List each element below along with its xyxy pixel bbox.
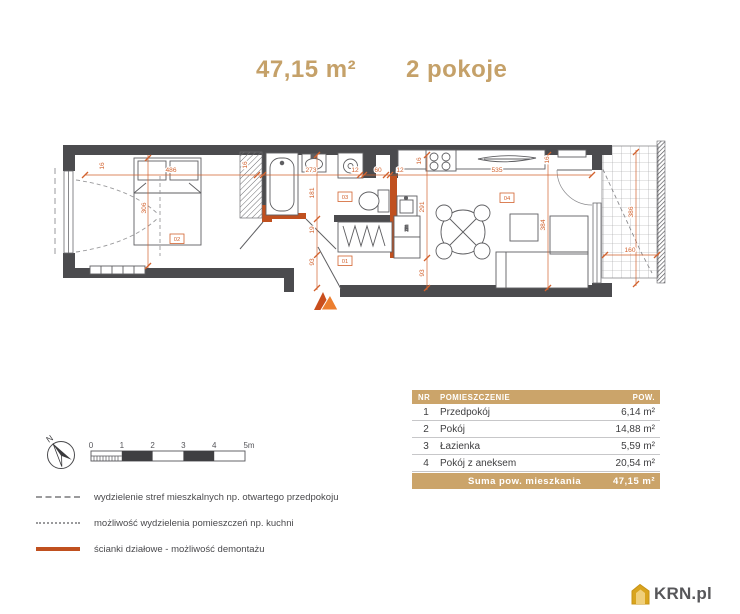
dimension-label: 384 — [540, 219, 547, 230]
room-table-row: 4Pokój z aneksem20,54 m² — [412, 455, 660, 472]
legend: wydzielenie stref mieszkalnych np. otwar… — [36, 484, 396, 562]
legend-item: możliwość wydzielenia pomieszczeń np. ku… — [36, 510, 396, 536]
dimension-label: 12 — [396, 167, 404, 174]
room-table-rows: 1Przedpokój6,14 m²2Pokój14,88 m²3Łazienk… — [412, 404, 660, 472]
dimension-label: 273 — [305, 167, 316, 174]
legend-line-sample-dashed — [36, 496, 80, 498]
row-area: 6,14 m² — [593, 407, 660, 418]
north-label: N — [44, 433, 55, 445]
scale-tick-label: 2 — [150, 441, 155, 450]
dimension-label: 93 — [309, 258, 316, 266]
header-nr: NR — [412, 393, 440, 402]
header-name: POMIESZCZENIE — [440, 393, 593, 402]
legend-item-label: wydzielenie stref mieszkalnych np. otwar… — [94, 492, 339, 503]
dimension-label: 60 — [374, 167, 382, 174]
room-table-row: 2Pokój14,88 m² — [412, 421, 660, 438]
dimension-label: 306 — [141, 202, 148, 213]
scale-bar: 012345m — [89, 441, 255, 461]
row-number: 1 — [412, 407, 440, 418]
furniture: zm — [76, 150, 588, 288]
room-label-text: 03 — [342, 195, 348, 201]
entrance-marker — [314, 292, 338, 310]
row-number: 3 — [412, 441, 440, 452]
scale-tick-label: 0 — [89, 441, 94, 450]
scale-tick-label: 1 — [120, 441, 125, 450]
row-area: 20,54 m² — [593, 458, 660, 469]
dimension-label: 160 — [624, 247, 635, 254]
row-number: 2 — [412, 424, 440, 435]
room-table-row: 1Przedpokój6,14 m² — [412, 404, 660, 421]
room-table-sum-row: Suma pow. mieszkania 47,15 m² — [412, 473, 660, 489]
dimension-label: 16 — [99, 162, 106, 170]
room-table-row: 3Łazienka5,59 m² — [412, 438, 660, 455]
row-area: 5,59 m² — [593, 441, 660, 452]
row-room-name: Pokój — [440, 424, 593, 435]
washing-machine — [338, 153, 363, 178]
scale-tick-label: 5m — [243, 441, 254, 450]
door-bedroom — [240, 222, 263, 249]
dimension-label: 181 — [309, 187, 316, 198]
legend-line-sample-dotted — [36, 522, 80, 524]
sum-label: Suma pow. mieszkania — [440, 476, 593, 487]
legend-line-sample-solid — [36, 547, 80, 551]
row-number: 4 — [412, 458, 440, 469]
dining-table — [436, 205, 490, 259]
dimension-label: 535 — [491, 167, 502, 174]
dimension-label: 19 — [309, 226, 316, 234]
krn-house-icon — [630, 582, 651, 606]
dimension-label: 386 — [628, 206, 635, 217]
room-table: NR POMIESZCZENIE POW. 1Przedpokój6,14 m²… — [412, 390, 660, 489]
row-area: 14,88 m² — [593, 424, 660, 435]
chair — [436, 243, 452, 259]
scale-tick-label: 4 — [212, 441, 217, 450]
door-entrance — [318, 247, 341, 289]
chair — [474, 243, 490, 259]
sum-value: 47,15 m² — [593, 476, 660, 487]
legend-item-label: możliwość wydzielenia pomieszczeń np. ku… — [94, 518, 294, 529]
header-pow: POW. — [593, 393, 660, 402]
row-room-name: Przedpokój — [440, 407, 593, 418]
kitchen-sink — [397, 196, 417, 216]
row-room-name: Łazienka — [440, 441, 593, 452]
legend-item-label: ścianki działowe - możliwość demontażu — [94, 544, 265, 555]
dimension-label: 486 — [165, 167, 176, 174]
dimension-label: 93 — [419, 269, 426, 277]
dimension-label: 291 — [419, 201, 426, 212]
radiator — [90, 266, 145, 274]
room-label-text: 01 — [342, 259, 348, 265]
chair — [474, 205, 490, 221]
balcony-railing — [657, 141, 665, 283]
coffee-table — [510, 214, 538, 241]
krn-logo-text: KRN.pl — [654, 584, 712, 604]
dimension-label: 16 — [416, 157, 423, 165]
krn-logo: KRN.pl — [630, 582, 712, 606]
toilet — [359, 190, 389, 212]
chair — [436, 205, 452, 221]
room-label-text: 02 — [174, 237, 180, 243]
row-room-name: Pokój z aneksem — [440, 458, 593, 469]
hall-wardrobe — [338, 222, 392, 252]
appliance-label: zm — [404, 225, 410, 232]
legend-item: ścianki działowe - możliwość demontażu — [36, 536, 396, 562]
room-table-header: NR POMIESZCZENIE POW. — [412, 390, 660, 404]
floorplan-page: { "title": { "area": "47,15 m²", "rooms_… — [0, 0, 740, 614]
dimension-label: 16 — [242, 161, 249, 169]
bathtub — [266, 153, 298, 215]
scale-tick-label: 3 — [181, 441, 186, 450]
scale-bar-ticks: 012345m — [89, 441, 255, 450]
dimension-label: 16 — [544, 156, 551, 164]
room-label-text: 04 — [504, 196, 511, 202]
compass: N — [42, 431, 75, 468]
kitchen-cabinets: zm — [394, 216, 420, 258]
shelf — [558, 150, 586, 157]
dimension-label: 12 — [351, 167, 359, 174]
legend-item: wydzielenie stref mieszkalnych np. otwar… — [36, 484, 396, 510]
